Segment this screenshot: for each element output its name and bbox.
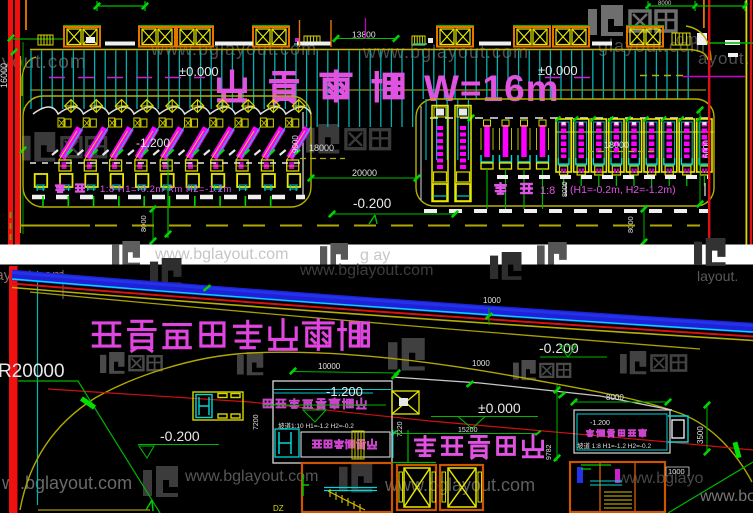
svg-text:www.bglayout.com: www.bglayout.com: [299, 262, 433, 279]
svg-text:-1.200: -1.200: [590, 420, 610, 427]
svg-text:1000: 1000: [472, 359, 490, 368]
svg-text:7220: 7220: [397, 421, 404, 437]
svg-text:1:8 H1=-0.2m Rm H2=-1.2m: 1:8 H1=-0.2m Rm H2=-1.2m: [100, 184, 232, 195]
svg-text:16000: 16000: [0, 63, 9, 88]
svg-text:w .bglayout.com: w .bglayout.com: [1, 473, 132, 493]
svg-text:7200: 7200: [253, 414, 260, 430]
svg-text:-0.200: -0.200: [160, 428, 200, 444]
svg-text:8000: 8000: [606, 393, 624, 402]
svg-text:±0.000: ±0.000: [478, 400, 521, 416]
svg-text:坡道 1:8 H1=-1.2 H2=-0.2: 坡道 1:8 H1=-1.2 H2=-0.2: [577, 441, 651, 450]
svg-text:-0.200: -0.200: [539, 340, 579, 356]
svg-text:±0.000: ±0.000: [538, 63, 578, 78]
svg-text:www.bo: www.bo: [699, 488, 753, 505]
svg-text:10000: 10000: [318, 362, 341, 371]
svg-text:9782: 9782: [546, 444, 553, 460]
svg-text:±0.000: ±0.000: [179, 64, 219, 79]
svg-text:-0.200: -0.200: [353, 196, 391, 211]
svg-text:8000: 8000: [562, 181, 569, 197]
svg-text:8000: 8000: [139, 215, 148, 232]
svg-text:18000: 18000: [604, 140, 629, 150]
svg-text:-1.200: -1.200: [326, 384, 363, 399]
svg-text:1:8: 1:8: [540, 185, 555, 197]
svg-text:DZ: DZ: [273, 504, 284, 513]
svg-text:1000: 1000: [668, 467, 685, 476]
svg-text:18000: 18000: [309, 143, 334, 153]
svg-text:layout.: layout.: [697, 268, 738, 284]
svg-text:9000: 9000: [291, 135, 300, 153]
svg-text:-1.200: -1.200: [136, 136, 170, 150]
svg-text:3500: 3500: [696, 426, 705, 444]
svg-text:ayout.: ayout.: [698, 49, 750, 68]
svg-text:R20000: R20000: [0, 361, 65, 382]
svg-text:20000: 20000: [352, 168, 377, 178]
svg-text:www.bglayout.com: www.bglayout.com: [184, 468, 318, 485]
svg-text:8000: 8000: [658, 1, 672, 7]
svg-text:15200: 15200: [458, 427, 478, 434]
svg-text:(H1=-0.2m, H2=-1.2m): (H1=-0.2m, H2=-1.2m): [570, 184, 676, 196]
svg-text:www.bglayo: www.bglayo: [617, 470, 703, 487]
svg-text:1000: 1000: [483, 296, 501, 305]
